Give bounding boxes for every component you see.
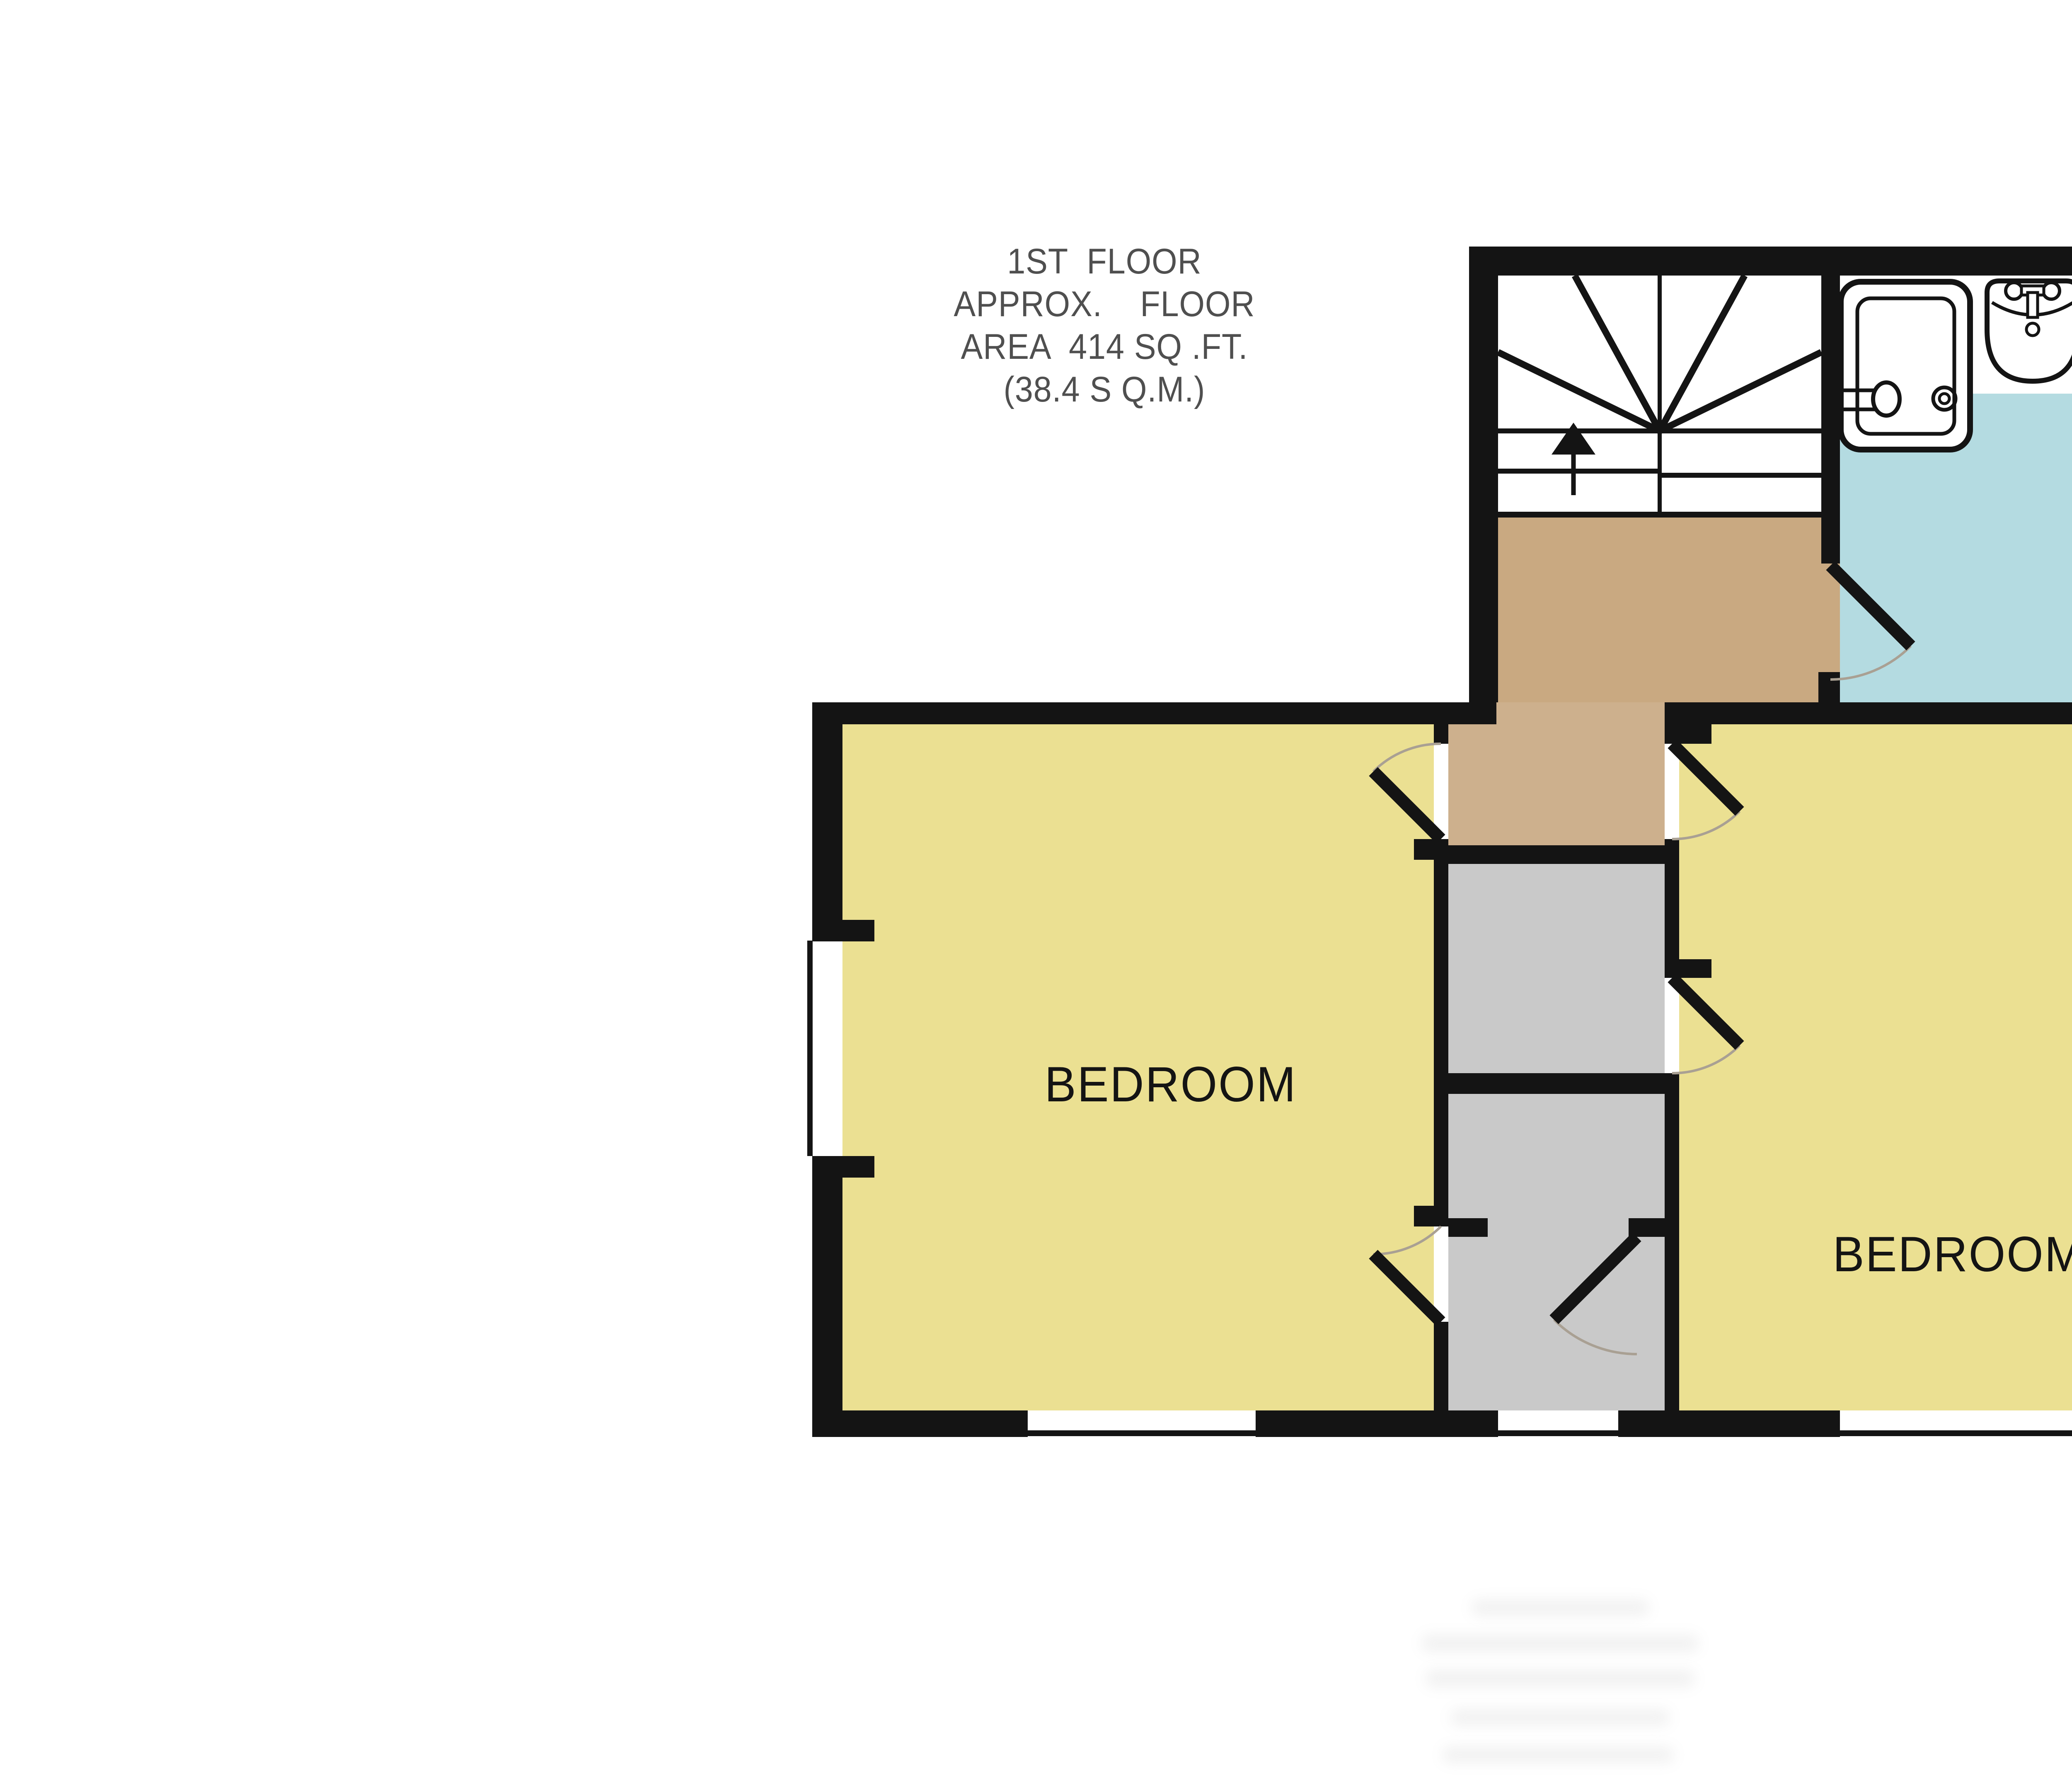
right-bedroom-label-wrap: BEDROOM xyxy=(1833,1226,2072,1282)
header-text-block: 1ST FLOOR APPROX. FLOOR AREA 414 SQ .FT.… xyxy=(954,241,1255,409)
ghost-watermark-line xyxy=(1442,1746,1674,1763)
ghost-watermark-line xyxy=(1471,1599,1649,1616)
left-bedroom-label: BEDROOM xyxy=(1045,1056,1297,1112)
closet-door-tab-left xyxy=(1448,1218,1488,1237)
wall-left-upper xyxy=(812,702,842,941)
wall-corridor-left-mid xyxy=(1434,839,1448,1226)
header-line-3: AREA 414 SQ .FT. xyxy=(961,327,1248,367)
window-bottom-left-line xyxy=(1028,1430,1256,1436)
wall-hall-closet xyxy=(1434,845,1679,864)
door-tab-left-lower xyxy=(1414,1206,1448,1226)
ghost-watermark-line xyxy=(1426,1670,1695,1687)
wall-top xyxy=(1469,247,2072,276)
right-bedroom-floor xyxy=(1679,724,2072,1410)
wall-main-top-left xyxy=(812,702,1496,724)
header-line-1: 1ST FLOOR xyxy=(1007,241,1201,281)
wall-bottom-2 xyxy=(1256,1410,1498,1437)
door-tab-right-upper xyxy=(1665,724,1711,744)
window-bottom-right xyxy=(1840,1410,2072,1431)
wall-stairs-left xyxy=(1469,247,1498,702)
right-bedroom-label: BEDROOM xyxy=(1833,1226,2072,1282)
wall-bottom-3 xyxy=(1618,1410,1840,1437)
sink-tap-left xyxy=(2006,283,2022,299)
window-bottom-left xyxy=(1028,1410,1256,1431)
ghost-watermark-line xyxy=(1450,1709,1670,1726)
window-bottom-right-line xyxy=(1840,1430,2072,1436)
header-line-2: APPROX. FLOOR xyxy=(954,284,1255,324)
window-left-tab-top xyxy=(812,920,874,941)
hall-wall-gap-floor xyxy=(1496,702,1665,724)
closet-upper-floor xyxy=(1448,864,1665,1073)
closet-lower-floor xyxy=(1448,1094,1665,1410)
left-bedroom-label-wrap: BEDROOM xyxy=(1045,1056,1297,1112)
sink-tap-right xyxy=(2043,283,2060,299)
door-tab-right-mid xyxy=(1665,959,1711,978)
sink-spout xyxy=(2028,293,2038,317)
wall-corridor-right-bottom xyxy=(1665,1073,1679,1410)
window-left-outer-line xyxy=(807,941,813,1156)
header-line-4: (38.4 S Q.M.) xyxy=(1004,369,1205,409)
wall-corridor-left-stub-top xyxy=(1434,724,1448,744)
floor-plan-page: 1ST FLOOR APPROX. FLOOR AREA 414 SQ .FT.… xyxy=(0,0,2072,1790)
hall-floor xyxy=(1448,724,1665,845)
ghost-watermark-line xyxy=(1421,1635,1699,1652)
wall-bathroom-door-stub xyxy=(1818,672,1840,702)
wall-bottom-1 xyxy=(812,1410,1028,1437)
shower-head-icon xyxy=(1873,382,1900,416)
landing-floor xyxy=(1498,515,1821,702)
wall-stairs-bathroom xyxy=(1821,276,1840,564)
wall-closet-closet xyxy=(1434,1073,1679,1094)
wall-corridor-left-bottom xyxy=(1434,1322,1448,1410)
wall-left-lower xyxy=(812,1156,842,1437)
floor-plan-drawing: 1ST FLOOR APPROX. FLOOR AREA 414 SQ .FT.… xyxy=(0,0,2072,1790)
wall-main-top-right xyxy=(1665,702,2072,724)
window-bottom-middle xyxy=(1498,1410,1618,1431)
window-bottom-middle-line xyxy=(1498,1430,1618,1436)
